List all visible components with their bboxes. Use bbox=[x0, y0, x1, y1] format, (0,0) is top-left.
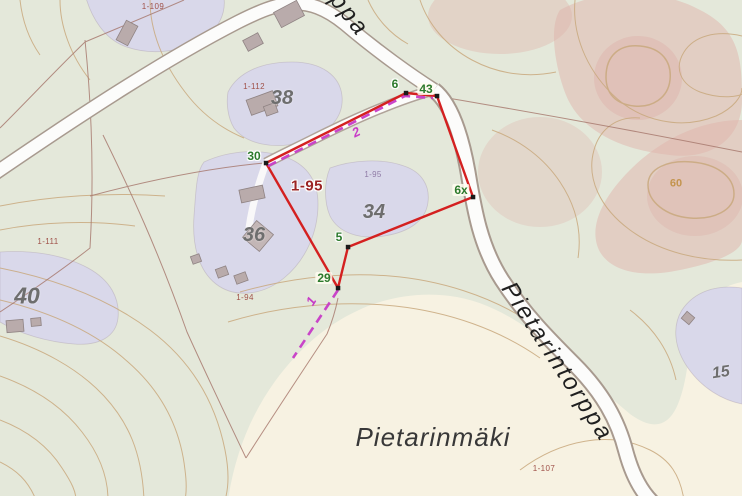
house-number-40: 40 bbox=[14, 285, 40, 308]
map-viewport[interactable]: 1-109 1-112 1-111 1-94 1-107 1-95 38 34 … bbox=[0, 0, 742, 496]
contour-elevation-label: 60 bbox=[670, 179, 682, 190]
cadastral-id-1-109: 1-109 bbox=[142, 3, 164, 11]
parcel-label-1-95: 1-95 bbox=[291, 179, 323, 194]
cadastral-id-1-107: 1-107 bbox=[533, 465, 555, 473]
place-name: Pietarinmäki bbox=[355, 424, 510, 450]
cadastral-id-1-95-small: 1-95 bbox=[364, 171, 381, 179]
vertex-label-43: 43 bbox=[417, 83, 434, 95]
cadastral-id-1-112: 1-112 bbox=[243, 83, 265, 91]
vertex-label-29: 29 bbox=[315, 272, 332, 284]
vertex-label-30: 30 bbox=[247, 150, 260, 162]
house-number-34: 34 bbox=[363, 202, 385, 222]
cadastral-id-1-111: 1-111 bbox=[37, 238, 58, 246]
house-number-36: 36 bbox=[243, 225, 265, 245]
cadastral-id-1-94: 1-94 bbox=[236, 294, 254, 302]
vertex-label-5: 5 bbox=[336, 231, 343, 243]
vertex-label-6x: 6x bbox=[452, 184, 469, 196]
vertex-label-6: 6 bbox=[392, 78, 399, 90]
house-number-15: 15 bbox=[711, 364, 731, 382]
house-number-38: 38 bbox=[271, 88, 293, 108]
